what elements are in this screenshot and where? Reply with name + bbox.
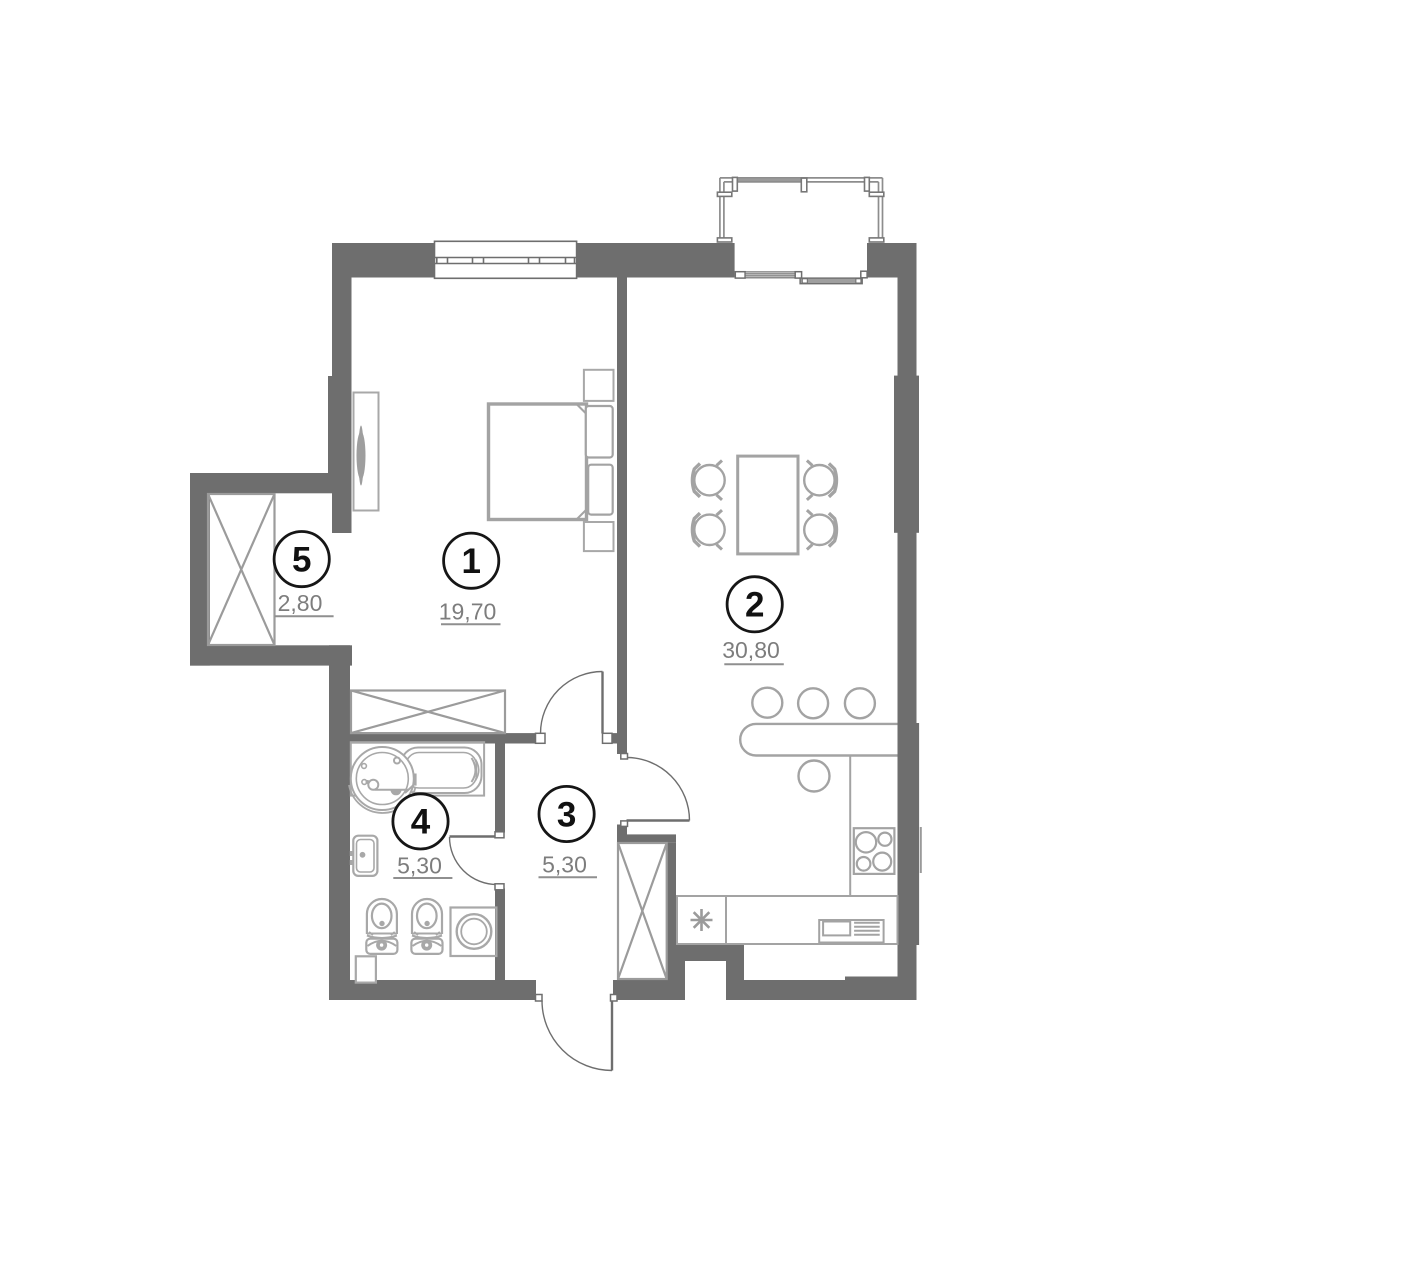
svg-text:3: 3 [557,795,576,834]
svg-text:5,30: 5,30 [397,853,442,879]
svg-text:4: 4 [411,803,431,842]
svg-text:5,30: 5,30 [542,852,587,878]
svg-text:30,80: 30,80 [722,637,780,663]
svg-text:5: 5 [292,540,311,579]
svg-text:1: 1 [461,542,480,581]
svg-text:19,70: 19,70 [439,599,497,625]
svg-text:2: 2 [745,586,764,625]
svg-text:2,80: 2,80 [278,590,323,616]
